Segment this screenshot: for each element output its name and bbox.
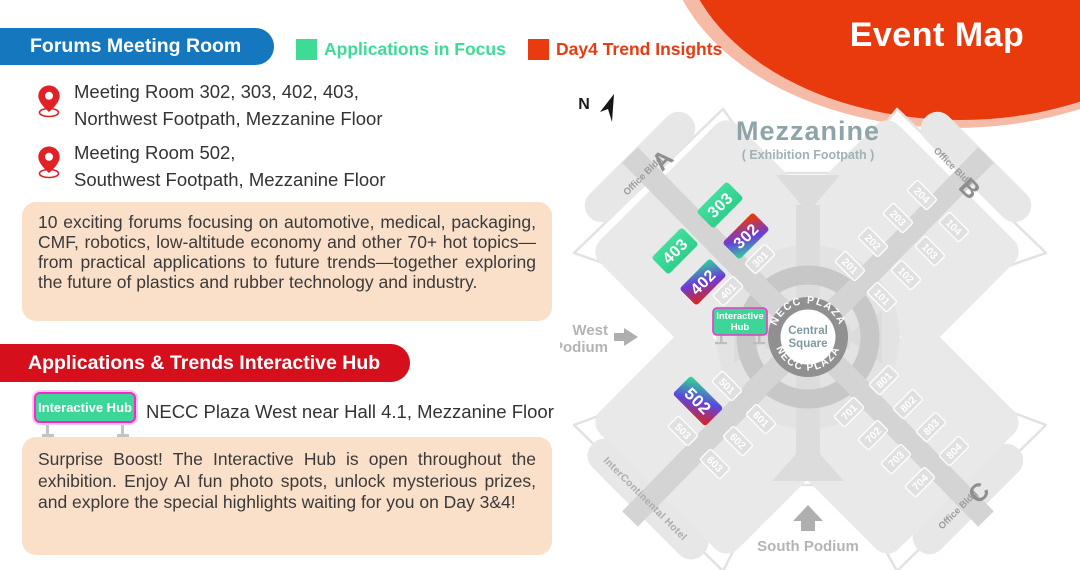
meeting-room-nw-line1: Meeting Room 302, 303, 402, 403, <box>74 79 382 106</box>
legend-applications-in-focus: Applications in Focus <box>296 39 506 60</box>
meeting-room-nw-line2: Northwest Footpath, Mezzanine Floor <box>74 106 382 133</box>
sign-leg <box>715 342 727 344</box>
west-podium-label-2: Podium <box>560 339 608 356</box>
legend-green-swatch <box>296 39 317 60</box>
south-podium-label: South Podium <box>757 538 859 555</box>
interactive-hub-pill: Applications & Trends Interactive Hub <box>0 344 410 382</box>
meeting-room-sw-text: Meeting Room 502, Southwest Footpath, Me… <box>74 140 386 193</box>
forums-description-panel: 10 exciting forums focusing on automotiv… <box>22 202 552 321</box>
legend-day4-trend-insights: Day4 Trend Insights <box>528 39 722 60</box>
venue-map: NECC PLAZA NECC PLAZA Central Square 401… <box>560 85 1080 570</box>
page-title: Event Map <box>822 16 1052 55</box>
location-pin-icon <box>36 145 62 184</box>
meeting-room-sw-line2: Southwest Footpath, Mezzanine Floor <box>74 167 386 194</box>
interactive-hub-sign-label: Interactive Hub <box>34 392 136 423</box>
sign-leg <box>758 335 761 342</box>
sign-leg <box>753 342 765 344</box>
hub-description-panel: Surprise Boost! The Interactive Hub is o… <box>22 437 552 555</box>
map-subtitle: ( Exhibition Footpath ) <box>742 148 875 162</box>
forums-meeting-room-pill: Forums Meeting Room <box>0 28 274 65</box>
sign-leg <box>121 425 124 434</box>
location-pin-icon <box>36 84 62 123</box>
north-arrow-icon <box>600 94 614 122</box>
legend-label: Day4 Trend Insights <box>556 39 722 60</box>
interactive-hub-sign: Interactive Hub <box>34 392 136 423</box>
legend-red-swatch <box>528 39 549 60</box>
legend-label: Applications in Focus <box>324 39 506 60</box>
meeting-room-sw-line1: Meeting Room 502, <box>74 140 386 167</box>
map-title: Mezzanine <box>736 116 880 146</box>
meeting-room-nw-text: Meeting Room 302, 303, 402, 403, Northwe… <box>74 79 382 132</box>
map-hub-label-2: Hub <box>731 322 750 333</box>
central-square-label-2: Square <box>789 338 828 350</box>
sign-leg <box>46 425 49 434</box>
south-podium-arrow-icon <box>793 505 823 531</box>
map-hub-label-1: Interactive <box>716 311 764 322</box>
west-podium-label-1: West <box>572 322 608 339</box>
hub-location-text: NECC Plaza West near Hall 4.1, Mezzanine… <box>146 401 554 423</box>
central-square-label-1: Central <box>788 325 828 337</box>
west-podium-arrow-icon <box>614 328 638 346</box>
north-label: N <box>578 96 590 113</box>
sign-leg <box>720 335 723 342</box>
event-map-poster: Event Map Forums Meeting Room Applicatio… <box>0 0 1080 570</box>
